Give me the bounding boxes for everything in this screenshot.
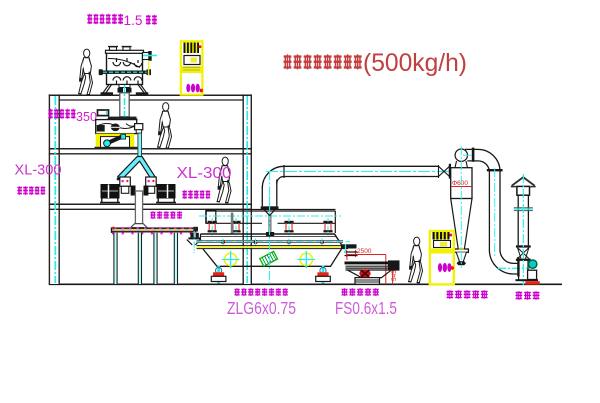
svg-text:XL-300: XL-300	[15, 163, 62, 179]
svg-text:XL-300: XL-300	[177, 165, 232, 182]
svg-text:350: 350	[76, 109, 97, 124]
svg-text:2500: 2500	[357, 248, 372, 255]
svg-text:Φ600: Φ600	[452, 180, 468, 187]
svg-text:ZLG6x0.75: ZLG6x0.75	[227, 298, 296, 318]
svg-text:(500kg/h): (500kg/h)	[363, 49, 467, 77]
svg-text:1.5: 1.5	[124, 12, 143, 28]
svg-text:FS0.6x1.5: FS0.6x1.5	[335, 298, 397, 318]
svg-text:545: 545	[391, 270, 398, 281]
